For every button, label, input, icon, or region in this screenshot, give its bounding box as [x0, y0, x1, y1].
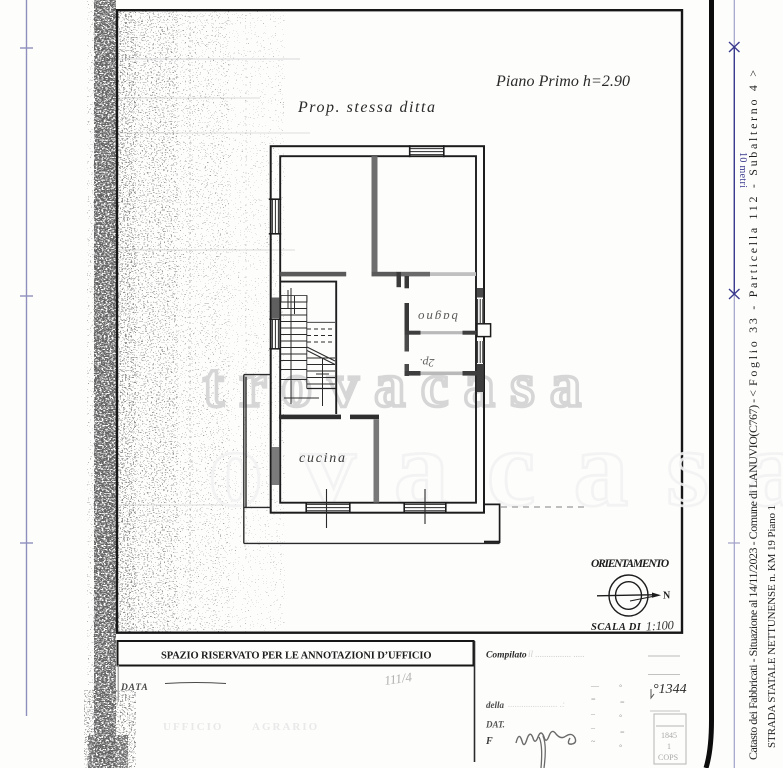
svg-text:COPS: COPS: [658, 753, 678, 762]
svg-text:~: ~: [591, 737, 596, 746]
svg-text:SPAZIO RISERVATO PER LE ANNOTA: SPAZIO RISERVATO PER LE ANNOTAZIONI D’UF…: [161, 651, 432, 662]
svg-text:=: =: [620, 728, 625, 737]
svg-text:1:100: 1:100: [645, 618, 674, 633]
svg-text:°: °: [619, 743, 622, 752]
svg-text:Prop. stessa ditta: Prop. stessa ditta: [297, 99, 435, 116]
svg-text:Foglio 33 - Particella 112 -: Foglio 33 - Particella 112 - Subalterno …: [746, 70, 760, 386]
svg-text:ORIENTAMENTO: ORIENTAMENTO: [591, 558, 670, 570]
svg-text:AGRARIO: AGRARIO: [252, 721, 319, 733]
svg-text:DATA: DATA: [120, 683, 149, 693]
svg-text:della: della: [486, 700, 504, 710]
svg-text:il ................ .....: il ................ .....: [528, 649, 585, 659]
svg-text:Piano Primo h=2.90: Piano Primo h=2.90: [495, 73, 630, 90]
svg-text:UFFICIO: UFFICIO: [163, 721, 223, 733]
svg-text:bagno: bagno: [418, 310, 459, 325]
svg-text:1: 1: [667, 742, 671, 751]
svg-text:°: °: [619, 713, 622, 722]
svg-text:1845: 1845: [661, 731, 677, 740]
svg-text:F: F: [485, 736, 493, 747]
svg-text:—: —: [590, 681, 600, 690]
svg-text:°: °: [619, 683, 622, 692]
svg-text:SCALA DI: SCALA DI: [591, 622, 642, 633]
svg-text:Compilato: Compilato: [486, 651, 527, 661]
svg-text:=: =: [591, 695, 596, 704]
svg-text:...................... .:: ...................... .:: [508, 699, 565, 709]
svg-text:N: N: [663, 591, 671, 602]
svg-text:°1344: °1344: [653, 682, 687, 697]
svg-text:DAT.: DAT.: [485, 720, 505, 730]
svg-text:=: =: [620, 698, 625, 707]
svg-text:Catasto dei Fabbricati - Situa: Catasto dei Fabbricati - Situazione al 1…: [746, 390, 760, 760]
svg-text:STRADA STATALE NETTUNENSE n. K: STRADA STATALE NETTUNENSE n. KM 19 Piano…: [766, 505, 778, 748]
svg-text:2p.: 2p.: [420, 356, 435, 370]
